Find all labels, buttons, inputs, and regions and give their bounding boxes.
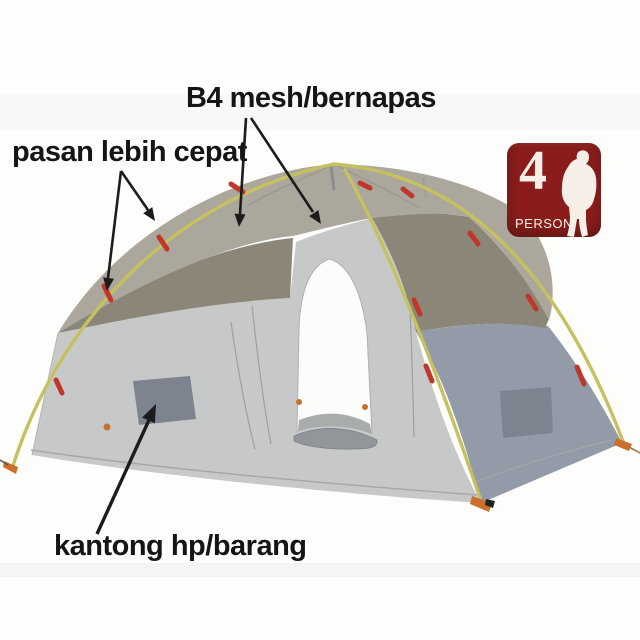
capacity-badge: 4 PERSON <box>507 143 601 237</box>
label-storage-pocket: kantong hp/barang <box>54 530 307 563</box>
product-image: B4 mesh/bernapas pasan lebih cepat kanto… <box>0 0 640 640</box>
label-mesh-breathable: B4 mesh/bernapas <box>186 82 436 115</box>
badge-person-count: 4 <box>519 139 547 203</box>
hiker-icon <box>556 146 600 244</box>
label-quick-setup: pasan lebih cepat <box>12 136 247 169</box>
guy-line <box>629 447 640 453</box>
arrow-setup-1 <box>121 171 148 210</box>
side-pocket <box>500 387 553 438</box>
